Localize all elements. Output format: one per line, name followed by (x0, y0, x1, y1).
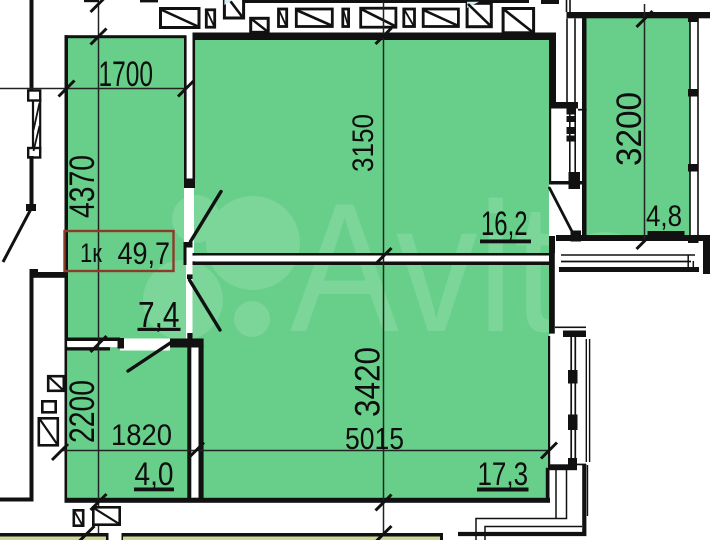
svg-text:5015: 5015 (345, 421, 404, 456)
svg-text:4,8: 4,8 (646, 200, 682, 233)
svg-text:3420: 3420 (349, 347, 388, 417)
svg-text:17,3: 17,3 (478, 456, 529, 492)
svg-text:4370: 4370 (63, 155, 102, 218)
svg-text:1к: 1к (80, 238, 102, 268)
svg-text:1700: 1700 (99, 55, 154, 94)
svg-text:4,0: 4,0 (135, 456, 174, 492)
svg-text:2200: 2200 (63, 380, 102, 443)
svg-text:1820: 1820 (111, 419, 172, 452)
svg-text:3150: 3150 (347, 114, 380, 172)
svg-text:49,7: 49,7 (118, 235, 171, 271)
svg-text:16,2: 16,2 (481, 205, 528, 243)
svg-text:3200: 3200 (610, 92, 649, 166)
